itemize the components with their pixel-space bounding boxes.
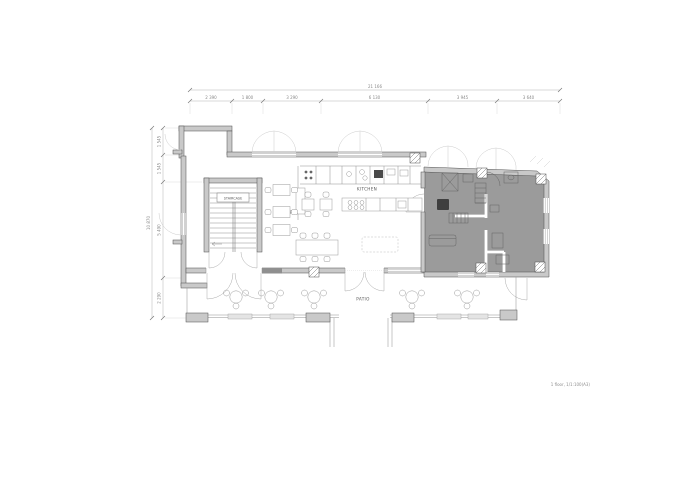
room-label-staircase: STAIRCASE	[224, 196, 242, 200]
dim-top-seg-1: 2 390	[205, 95, 217, 100]
column-hatched	[410, 153, 420, 163]
patio-table	[259, 290, 284, 309]
patio-table	[400, 290, 425, 309]
burners	[305, 171, 313, 180]
dim-left-seg-4: 2 290	[157, 292, 162, 304]
dim-top-seg-4: 6 130	[369, 95, 381, 100]
dim-left-seg-2: 1 545	[157, 162, 162, 174]
cafe-indoor: CAFE1	[265, 185, 398, 262]
room-label-kitchen: KITCHEN	[357, 187, 377, 192]
dim-left-seg-1: 1 545	[157, 135, 162, 147]
dim-top-seg-2: 1 800	[242, 95, 254, 100]
top-dimension: 21 166 2 390 1 800 3 290 6 130 3 945 3 6…	[188, 84, 562, 114]
shaded-zone	[406, 167, 549, 300]
entrance-doors	[345, 272, 384, 291]
floor-plan-canvas: 21 166 2 390 1 800 3 290 6 130 3 945 3 6…	[0, 0, 700, 495]
patio-table	[302, 290, 327, 309]
plan-note: 1 floor, 1/1:100(A3)	[551, 382, 591, 387]
dim-top-seg-3: 3 290	[286, 95, 298, 100]
patio-table	[455, 290, 480, 309]
patio-table	[224, 290, 249, 309]
dim-top-seg-6: 3 640	[523, 95, 535, 100]
dim-left-total: 10 870	[146, 216, 151, 230]
sliding-door	[262, 268, 282, 274]
staircase: STAIRCASE	[204, 178, 262, 299]
terrace: PATIO	[186, 277, 517, 347]
dim-top-total: 21 166	[368, 84, 382, 89]
cafe-long-table	[296, 233, 338, 262]
floor-plan-page: 21 166 2 390 1 800 3 290 6 130 3 945 3 6…	[0, 0, 700, 495]
left-dimension: 10 870 1 545 1 545 5 490 2 290	[146, 126, 202, 320]
cafe-ghost-counter	[362, 237, 398, 252]
column-hatched	[309, 267, 319, 277]
kitchen-fixture-dark	[374, 170, 383, 178]
kitchen: KITCHEN	[296, 166, 422, 220]
cafe-side-tables	[265, 185, 298, 236]
room-label-patio: PATIO	[356, 297, 370, 302]
dim-top-seg-5: 3 945	[457, 95, 469, 100]
zone-fixture-dark	[437, 199, 449, 210]
dim-left-seg-3: 5 490	[157, 224, 162, 236]
